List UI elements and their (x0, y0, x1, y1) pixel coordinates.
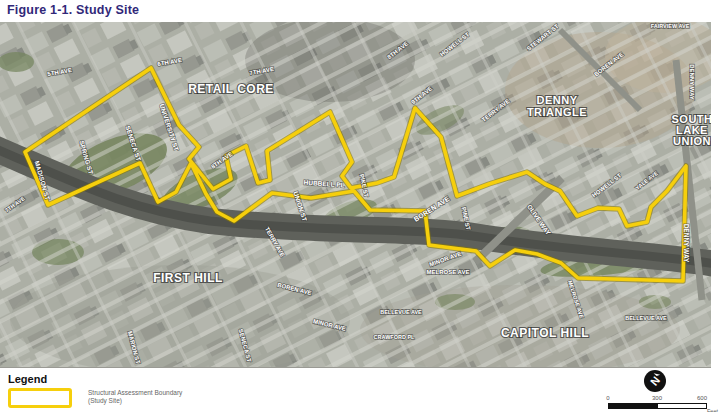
scale-bar-rule (608, 403, 707, 409)
street-label: BELLEVUE AVE (380, 309, 422, 315)
legend: Legend Structural Assessment Boundary (S… (8, 373, 182, 408)
neighborhood-label: TRIANGLE (527, 106, 587, 118)
figure-title: Figure 1-1. Study Site (7, 3, 139, 17)
figure-page: Figure 1-1. Study Site (0, 0, 720, 412)
street-label: FAIRVIEW AVE (651, 23, 690, 29)
street-label: BELLEVUE AVE (625, 315, 667, 321)
north-arrow-icon: N (643, 369, 667, 397)
street-label: DENNY WAY (683, 224, 690, 263)
neighborhood-label: RETAIL CORE (188, 82, 274, 96)
scale-tick-300: 300 (652, 395, 662, 401)
legend-heading: Legend (8, 373, 182, 385)
neighborhood-label: DENNY (536, 94, 577, 106)
legend-item-label: Structural Assessment Boundary (Study Si… (88, 388, 182, 404)
street-label: MELROSE AVE (426, 269, 469, 275)
scale-bar: 0 300 600 Feet (596, 395, 714, 411)
street-label: DENNY WAY (689, 64, 695, 100)
neighborhood-label: FIRST HILL (153, 271, 223, 285)
street-label: CRAWFORD PL (374, 334, 416, 340)
aerial-map-image: 5TH AVE6TH AVE7TH AVEUNIVERSITY STSENECA… (0, 22, 711, 368)
neighborhood-label: CAPITOL HILL (501, 326, 589, 340)
neighborhood-label: UNION (673, 135, 711, 147)
scale-tick-600: 600 (697, 395, 707, 401)
map-furniture: N 0 300 600 Feet (596, 369, 714, 411)
map-canvas: 5TH AVE6TH AVE7TH AVEUNIVERSITY STSENECA… (0, 22, 711, 367)
scale-unit-label: Feet (707, 408, 718, 412)
boundary-swatch-icon (8, 388, 72, 408)
scale-tick-0: 0 (606, 395, 609, 401)
